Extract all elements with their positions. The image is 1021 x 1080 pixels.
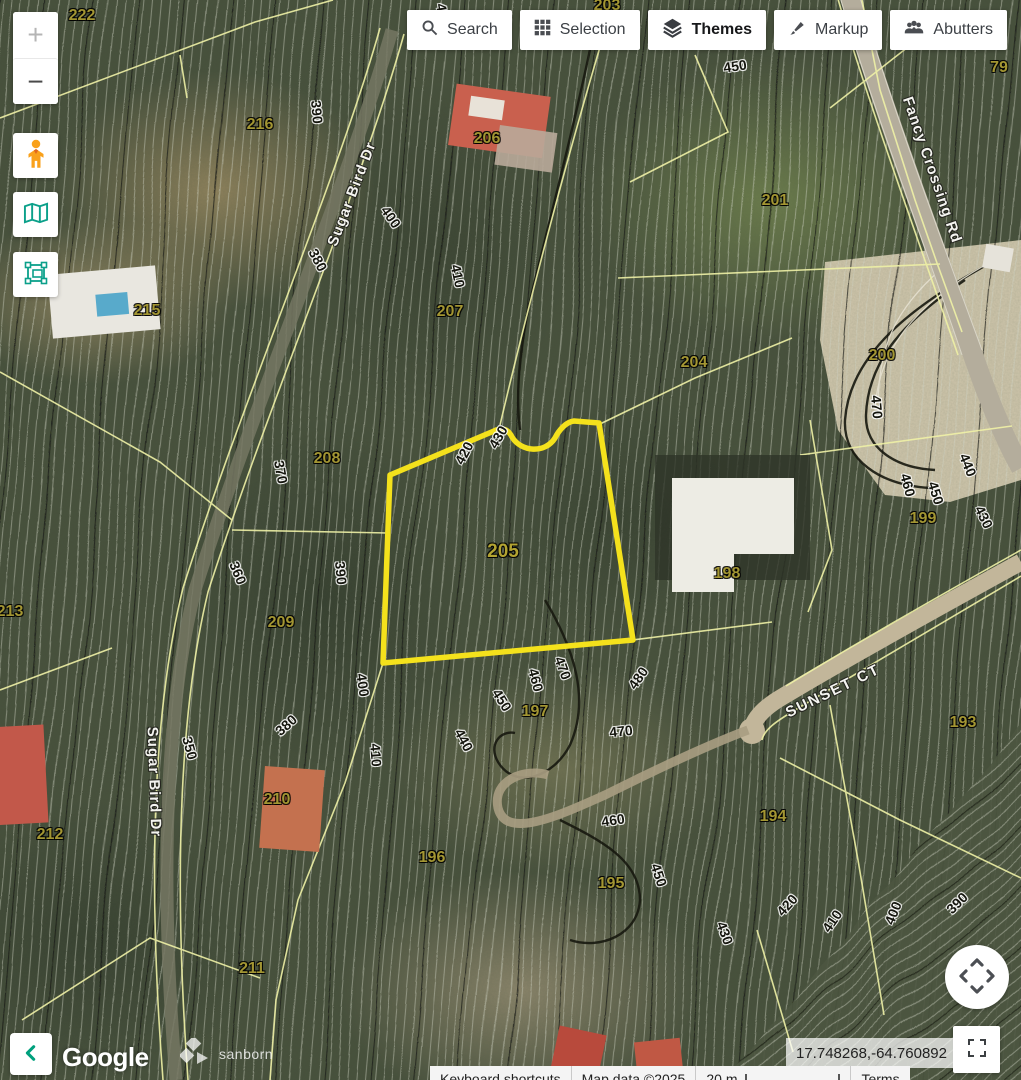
fullscreen-button[interactable] bbox=[953, 1026, 1000, 1073]
layers-icon bbox=[662, 17, 683, 43]
themes-button[interactable]: Themes bbox=[648, 10, 766, 50]
markup-button-label: Markup bbox=[815, 21, 868, 39]
zoom-control: + − bbox=[13, 12, 58, 104]
abutters-button[interactable]: Abutters bbox=[890, 10, 1007, 50]
scale-bar bbox=[745, 1074, 840, 1080]
keyboard-shortcuts-link[interactable]: Keyboard shortcuts bbox=[430, 1071, 571, 1080]
markup-button[interactable]: Markup bbox=[774, 10, 882, 50]
pan-arrows-icon bbox=[957, 956, 997, 999]
collapse-sidebar-button[interactable] bbox=[10, 1033, 52, 1075]
people-icon bbox=[904, 19, 924, 42]
map-data-text: Map data ©2025 bbox=[572, 1071, 696, 1080]
toolbar: Search Selection Themes Markup Abutters bbox=[407, 10, 1007, 50]
map-viewport[interactable]: 2222032162067920121520720420020819819921… bbox=[0, 0, 1021, 1080]
terms-link[interactable]: Terms bbox=[851, 1071, 909, 1080]
search-button-label: Search bbox=[447, 21, 498, 39]
sanborn-mark-icon bbox=[180, 1038, 214, 1070]
basemap-toggle-button[interactable] bbox=[13, 192, 58, 237]
search-button[interactable]: Search bbox=[407, 10, 512, 50]
map-overlay-graphics bbox=[0, 0, 1021, 1080]
grid-icon bbox=[534, 19, 551, 41]
area-select-icon bbox=[23, 260, 49, 289]
selection-button[interactable]: Selection bbox=[520, 10, 640, 50]
coordinates-readout: 17.748268,-64.760892 bbox=[786, 1038, 957, 1068]
area-select-button[interactable] bbox=[13, 252, 58, 297]
sanborn-logo-text: sanborn bbox=[219, 1046, 273, 1062]
selection-button-label: Selection bbox=[560, 21, 626, 39]
map-attribution-bar: Keyboard shortcuts Map data ©2025 20 m T… bbox=[430, 1066, 910, 1080]
google-logo: Google bbox=[62, 1042, 149, 1073]
fullscreen-corners-icon bbox=[966, 1037, 988, 1062]
zoom-in-button[interactable]: + bbox=[13, 12, 58, 58]
sanborn-logo: sanborn bbox=[180, 1038, 273, 1070]
zoom-out-button[interactable]: − bbox=[13, 58, 58, 104]
scale-text: 20 m bbox=[706, 1071, 737, 1080]
themes-button-label: Themes bbox=[692, 21, 752, 39]
search-icon bbox=[421, 19, 438, 41]
pan-recenter-button[interactable] bbox=[945, 945, 1009, 1009]
scale-section: 20 m bbox=[696, 1071, 850, 1080]
folded-map-icon bbox=[23, 201, 49, 228]
abutters-button-label: Abutters bbox=[933, 21, 993, 39]
pegman-icon bbox=[23, 139, 49, 172]
street-view-pegman-button[interactable] bbox=[13, 133, 58, 178]
brush-icon bbox=[788, 19, 806, 42]
chevron-left-icon bbox=[23, 1044, 39, 1065]
